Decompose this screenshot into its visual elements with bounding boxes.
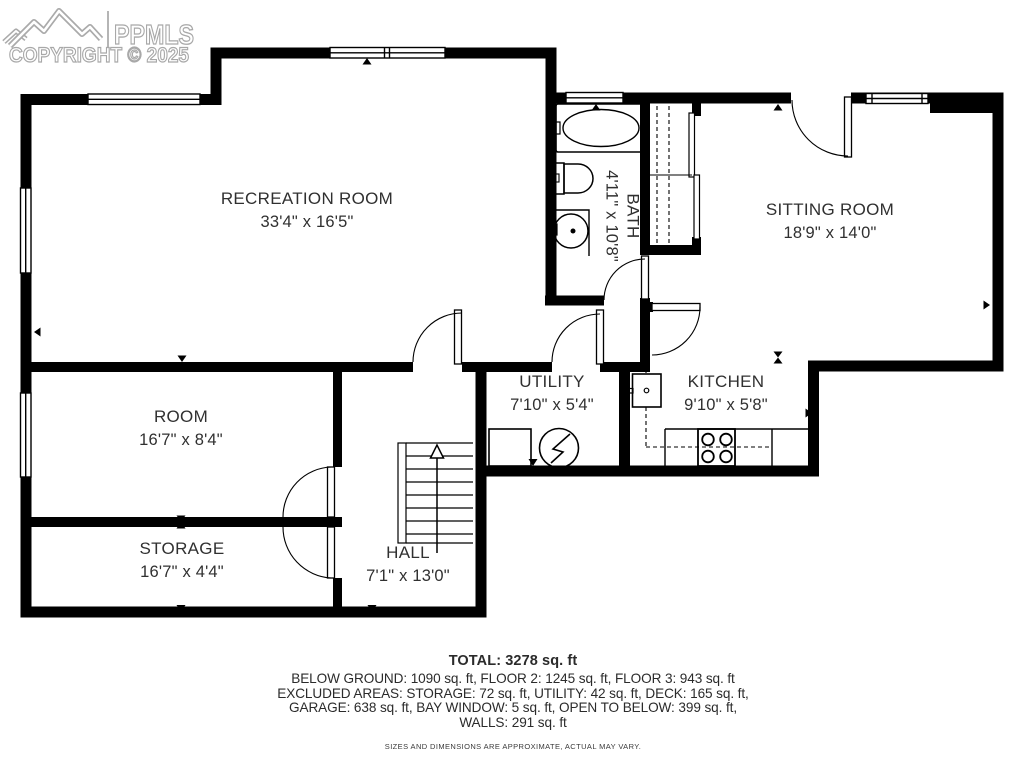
window-recreation-top xyxy=(330,48,445,59)
room-dims: 16'7" x 4'4" xyxy=(140,563,225,582)
refrigerator-icon xyxy=(626,374,661,407)
door-storage xyxy=(283,527,335,578)
marker-arrow-icon xyxy=(774,104,783,111)
closet-interior xyxy=(650,106,692,243)
marker-arrow-icon xyxy=(363,58,372,65)
room-label-storage: STORAGE 16'7" x 4'4" xyxy=(140,539,225,582)
door-recreation-stairs xyxy=(413,310,462,364)
room-dims: 4'11" x 10'8" xyxy=(602,170,621,262)
room-label-bath: BATH 4'11" x 10'8" xyxy=(602,170,643,262)
room-label-kitchen: KITCHEN 9'10" x 5'8" xyxy=(684,372,768,415)
floorplan-page: PPMLS COPYRIGHT © 2025 RECREATION ROOM 3… xyxy=(0,0,1024,767)
room-name: SITTING ROOM xyxy=(766,200,894,220)
marker-hourglass-icon xyxy=(774,352,783,364)
room-dims: 7'10" x 5'4" xyxy=(510,396,594,415)
room-label-hall: HALL 7'1" x 13'0" xyxy=(366,543,450,586)
summary-line: EXCLUDED AREAS: STORAGE: 72 sq. ft, UTIL… xyxy=(133,687,893,702)
window-bath xyxy=(566,93,623,104)
ppmls-watermark: PPMLS COPYRIGHT © 2025 xyxy=(2,2,232,68)
marker-arrow-icon xyxy=(984,301,991,310)
outer-walls xyxy=(26,53,1000,612)
room-name: BATH xyxy=(623,170,643,262)
window-room-left xyxy=(21,393,32,477)
window-sitting xyxy=(866,94,928,104)
summary-line: GARAGE: 638 sq. ft, BAY WINDOW: 5 sq. ft… xyxy=(133,701,893,716)
summary-line: BELOW GROUND: 1090 sq. ft, FLOOR 2: 1245… xyxy=(133,672,893,687)
room-dims: 7'1" x 13'0" xyxy=(366,567,450,586)
room-label-utility: UTILITY 7'10" x 5'4" xyxy=(510,372,594,415)
marker-arrow-icon xyxy=(529,459,538,466)
water-heater-icon xyxy=(540,429,579,468)
marker-arrow-icon xyxy=(34,328,41,337)
door-room xyxy=(283,467,335,517)
room-dims: 9'10" x 5'8" xyxy=(684,396,768,415)
room-label-sitting: SITTING ROOM 18'9" x 14'0" xyxy=(766,200,894,243)
marker-arrow-icon xyxy=(178,356,187,363)
door-bath xyxy=(604,256,649,300)
area-summary: TOTAL: 3278 sq. ft BELOW GROUND: 1090 sq… xyxy=(133,653,893,751)
door-utility xyxy=(552,310,604,364)
mountain-range-icon xyxy=(4,11,101,46)
room-name: HALL xyxy=(366,543,450,563)
window-recreation-left xyxy=(21,188,32,273)
summary-line: WALLS: 291 sq. ft xyxy=(133,716,893,731)
window-recreation-topleft xyxy=(88,94,200,105)
staircase xyxy=(398,443,473,553)
room-name: KITCHEN xyxy=(684,372,768,392)
disclaimer-text: SIZES AND DIMENSIONS ARE APPROXIMATE, AC… xyxy=(133,742,893,751)
room-name: STORAGE xyxy=(140,539,225,559)
room-dims: 33'4" x 16'5" xyxy=(221,213,393,232)
appliance-box-icon xyxy=(489,429,531,466)
room-name: RECREATION ROOM xyxy=(221,189,393,209)
toilet-icon xyxy=(551,163,593,194)
room-dims: 16'7" x 8'4" xyxy=(139,431,223,450)
door-kitchen xyxy=(652,304,700,356)
bathtub-icon xyxy=(553,104,643,152)
copyright-text: COPYRIGHT © 2025 xyxy=(9,44,189,67)
room-label-room: ROOM 16'7" x 8'4" xyxy=(139,407,223,450)
total-area: TOTAL: 3278 sq. ft xyxy=(133,653,893,669)
marker-arrow-icon xyxy=(592,104,601,111)
stairs-up-arrow-icon xyxy=(431,445,444,553)
room-name: UTILITY xyxy=(510,372,594,392)
room-dims: 18'9" x 14'0" xyxy=(766,224,894,243)
room-label-recreation: RECREATION ROOM 33'4" x 16'5" xyxy=(221,189,393,232)
closet-sliding-doors xyxy=(689,113,700,239)
door-sitting-room xyxy=(791,91,852,157)
room-name: ROOM xyxy=(139,407,223,427)
